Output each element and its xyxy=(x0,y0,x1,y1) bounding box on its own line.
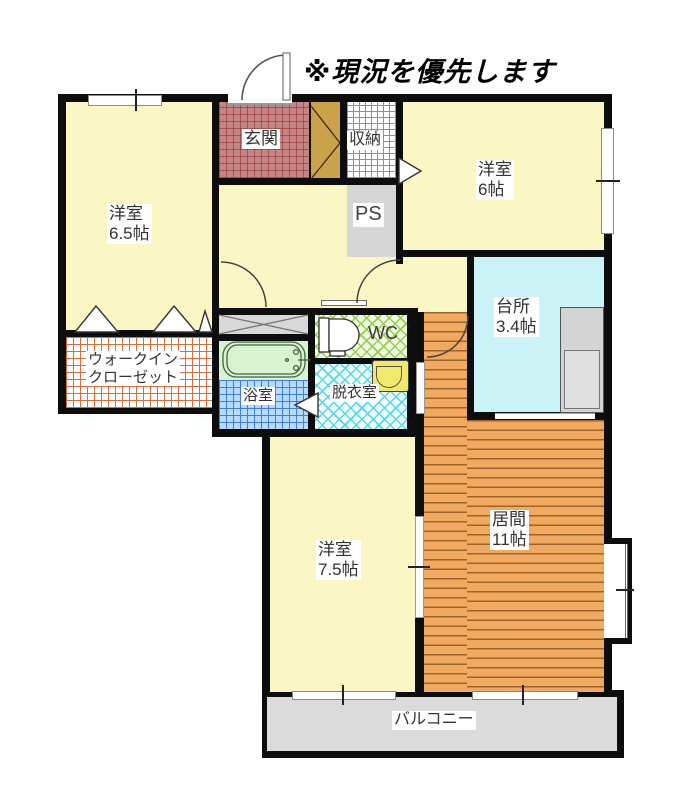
kitchen-label: 台所 3.4帖 xyxy=(494,297,539,337)
wall-bath-bottom xyxy=(212,429,424,437)
wall-room6-bottom xyxy=(403,250,612,257)
sliding-door-tick xyxy=(408,566,430,568)
bay-window-interior xyxy=(604,544,628,638)
room-75-name: 洋室 xyxy=(318,540,359,560)
wall-storage-right xyxy=(396,94,403,264)
outside-mask-below-bath xyxy=(212,437,262,797)
entrance-door-opening xyxy=(228,94,292,105)
storage-label: 収納 xyxy=(347,131,383,150)
wall-corridor-bottom xyxy=(212,308,418,315)
kitchen-size: 3.4帖 xyxy=(496,317,537,337)
shoe-cabinet xyxy=(311,102,340,180)
walkin-closet-line2: クローゼット xyxy=(88,369,178,387)
wall-kitchen-left xyxy=(467,250,474,418)
window-room65-tick xyxy=(135,89,137,111)
window-living-bottom xyxy=(472,691,578,700)
bath-tub-area xyxy=(219,341,308,380)
room-6-label: 洋室 6帖 xyxy=(476,160,514,200)
room-65-label: 洋室 6.5帖 xyxy=(107,204,152,244)
room-65-name: 洋室 xyxy=(109,204,150,224)
wall-genkan-bottom xyxy=(212,178,403,185)
room-65-size: 6.5帖 xyxy=(109,224,150,244)
wall-shoebox-right xyxy=(340,94,347,184)
kitchen-name: 台所 xyxy=(496,297,537,317)
bath-label: 浴室 xyxy=(241,387,275,405)
walkin-closet-label: ウォークイン クローゼット xyxy=(86,351,180,386)
wall-shoebox-left xyxy=(309,102,311,180)
kitchen-pass-opening xyxy=(495,413,595,419)
living-size: 11帖 xyxy=(492,530,527,550)
window-living-bottom-tick xyxy=(522,685,524,705)
room-6-size: 6帖 xyxy=(478,180,512,200)
living-name: 居間 xyxy=(492,510,527,530)
living-floor-main xyxy=(467,420,604,692)
note-title: ※現況を優先します xyxy=(304,50,555,89)
living-floor-column xyxy=(424,312,467,692)
sliding-door-dressing-living xyxy=(416,362,425,414)
entrance-label: 玄関 xyxy=(242,129,280,149)
kitchen-sink-unit xyxy=(564,350,600,409)
room-75-label: 洋室 7.5帖 xyxy=(316,540,361,580)
wc-label: WC xyxy=(366,323,400,344)
room-75-size: 7.5帖 xyxy=(318,560,359,580)
walkin-closet-line1: ウォークイン xyxy=(88,351,178,369)
bay-window-tick xyxy=(616,589,634,591)
floor-plan-image: ※現況を優先します 洋室 6.5帖 ウォークイン クローゼット 玄関 収納 PS… xyxy=(0,0,677,800)
window-room65-top xyxy=(88,95,162,106)
balcony-label: バルコニー xyxy=(392,711,476,730)
living-label: 居間 11帖 xyxy=(490,510,529,550)
wc-shelf xyxy=(321,300,367,306)
window-room6-tick xyxy=(596,180,620,182)
window-room75-bottom-tick xyxy=(342,685,344,705)
room-6-name: 洋室 xyxy=(478,160,512,180)
entrance-door-icon xyxy=(242,53,290,100)
outside-mask-left xyxy=(40,414,212,794)
washer-pan xyxy=(219,315,308,334)
wall-bath-wc-divider xyxy=(308,308,315,437)
dressing-label: 脱衣室 xyxy=(330,384,379,402)
wall-washerpan-bottom xyxy=(212,334,315,341)
window-room75-bottom xyxy=(292,691,396,700)
pipe-space-label: PS xyxy=(353,203,384,227)
